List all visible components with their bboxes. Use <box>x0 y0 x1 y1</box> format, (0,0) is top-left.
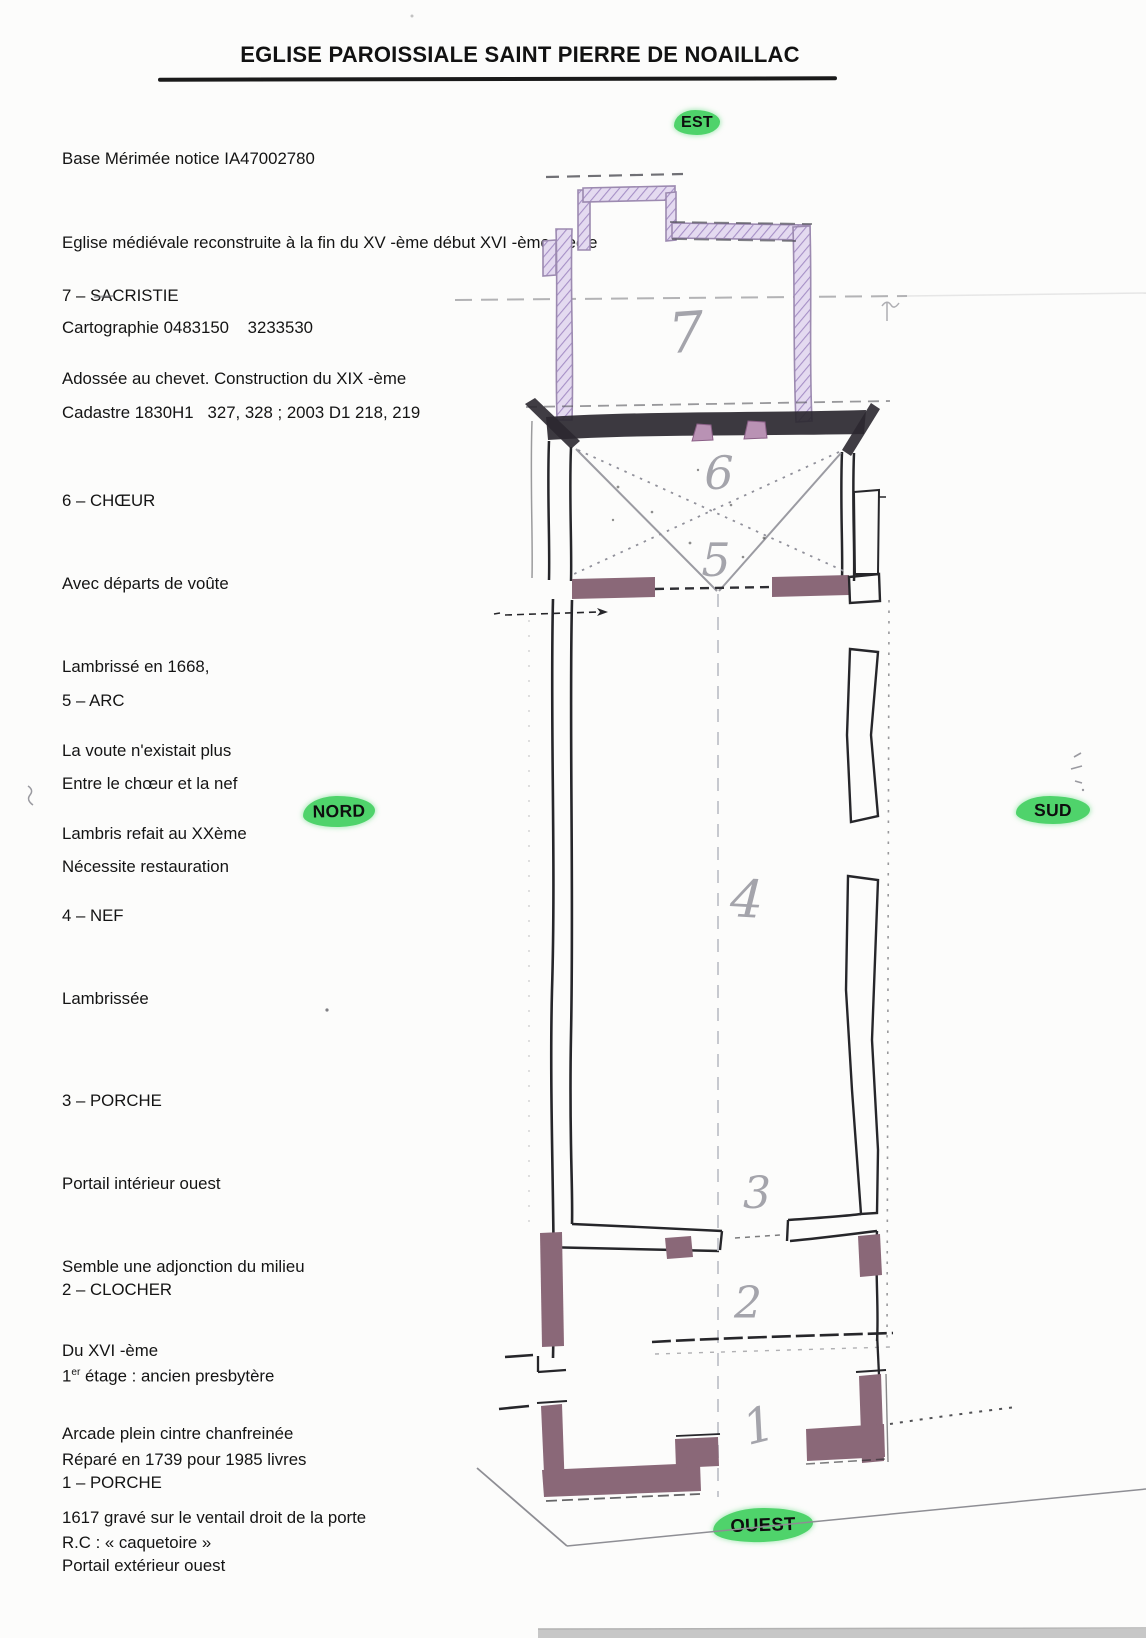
room-number-1: 1 <box>737 1395 780 1457</box>
scanned-document-page: { "page_title": "EGLISE PAROISSIALE SAIN… <box>0 0 1146 1638</box>
floor-plan-drawing: 7 6 5 4 3 2 1 <box>0 0 1146 1638</box>
ink-specks <box>612 469 766 559</box>
room-numbers: 7 6 5 4 3 2 1 <box>666 300 780 1457</box>
room-number-5: 5 <box>701 533 730 587</box>
room-number-7: 7 <box>666 300 706 367</box>
room-number-4: 4 <box>728 869 765 931</box>
bell-tower-walls <box>540 1232 893 1375</box>
room-number-2: 2 <box>733 1278 762 1329</box>
nave-walls <box>538 574 880 1372</box>
scan-edge-strip <box>538 1629 1146 1638</box>
room-number-6: 6 <box>704 446 733 500</box>
stray-marks <box>28 15 1084 1012</box>
room-number-3: 3 <box>743 1168 771 1219</box>
fold-line <box>94 293 1146 300</box>
